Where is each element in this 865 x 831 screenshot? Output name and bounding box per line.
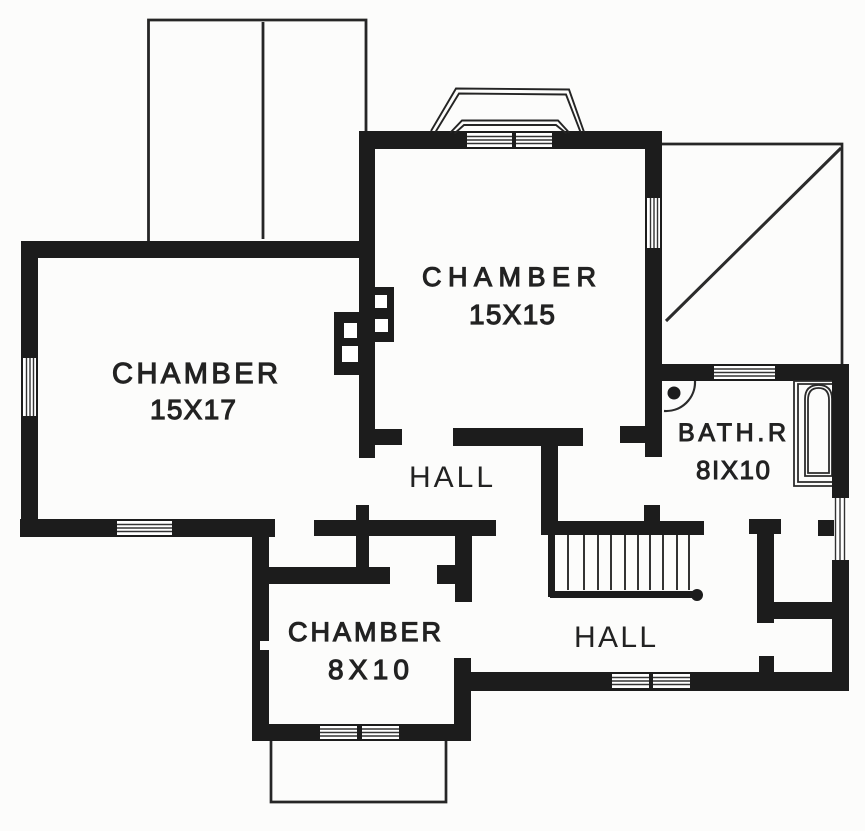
svg-text:15X15: 15X15 [469, 299, 555, 330]
svg-text:CHAMBER: CHAMBER [422, 262, 596, 292]
svg-text:CHAMBER: CHAMBER [288, 617, 441, 647]
svg-text:8IX10: 8IX10 [696, 455, 770, 485]
svg-text:HALL: HALL [409, 461, 493, 494]
svg-text:CHAMBER: CHAMBER [112, 358, 278, 390]
svg-text:BATH.R: BATH.R [678, 419, 786, 447]
svg-text:15X17: 15X17 [150, 394, 236, 425]
svg-text:HALL: HALL [574, 621, 656, 654]
